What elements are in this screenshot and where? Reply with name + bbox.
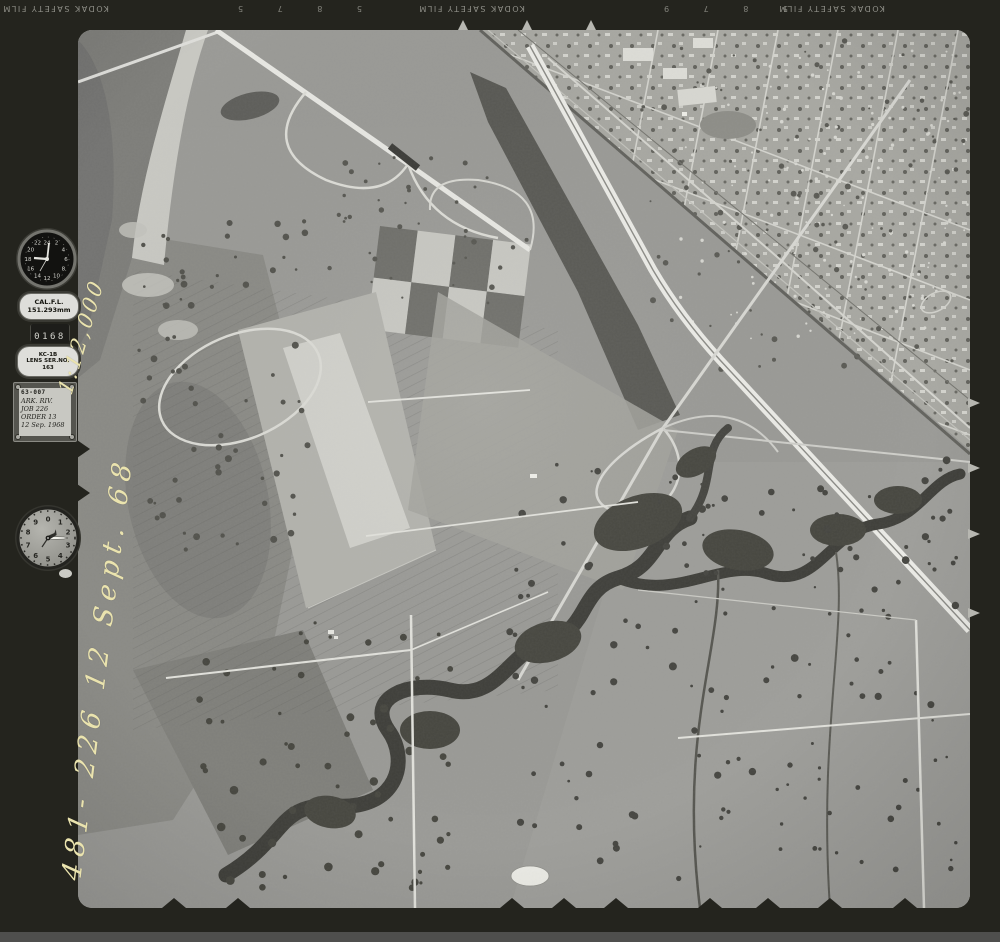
- svg-text:10: 10: [53, 273, 60, 279]
- svg-text:3: 3: [66, 542, 71, 550]
- calibrated-focal-length-label: CAL.F.L. 151.293mm: [19, 293, 79, 320]
- film-edge-text: KODAK SAFETY FILM: [2, 4, 109, 13]
- film-notch: [698, 898, 722, 908]
- film-notch: [968, 608, 980, 618]
- film-notch: [818, 898, 842, 908]
- film-notch: [756, 898, 780, 908]
- altimeter: 0 1 2 3 4 5 6 7 8 9: [12, 502, 84, 574]
- plate-date: 12 Sep. 1968: [21, 421, 69, 429]
- svg-text:14: 14: [34, 273, 41, 279]
- film-notch: [968, 529, 980, 539]
- svg-text:16: 16: [27, 267, 34, 273]
- plate-order: ORDER 13: [21, 413, 69, 421]
- film-notch: [552, 898, 576, 908]
- film-edge-text: KODAK SAFETY FILM: [778, 4, 885, 13]
- svg-text:7: 7: [26, 542, 31, 550]
- svg-text:20: 20: [27, 248, 34, 254]
- svg-text:4: 4: [58, 552, 63, 560]
- svg-text:12: 12: [44, 276, 51, 282]
- film-notch: [893, 898, 917, 908]
- svg-text:24: 24: [44, 241, 51, 247]
- svg-text:22: 22: [34, 241, 41, 247]
- film-notch: [586, 20, 596, 30]
- plate-job: JOB 226: [21, 405, 69, 413]
- aerial-photo: [78, 30, 970, 908]
- film-notch: [77, 440, 90, 458]
- svg-text:8: 8: [26, 529, 31, 537]
- svg-text:6: 6: [64, 257, 68, 263]
- film-notch: [968, 398, 980, 408]
- mission-clock: 24 2 4 6 8 10 12 14 16 18 20 22: [12, 224, 82, 294]
- film-edge-blemish: [59, 569, 72, 578]
- film-notch: [77, 484, 90, 502]
- film-notch: [162, 898, 186, 908]
- plate-area: ARK. RIV.: [21, 397, 69, 405]
- film-notch: [500, 898, 524, 908]
- svg-text:8: 8: [62, 267, 66, 273]
- scanner-background-strip: [0, 932, 1000, 942]
- aerial-photo-art: [78, 30, 970, 908]
- film-notch: [604, 898, 628, 908]
- svg-text:0: 0: [46, 516, 51, 524]
- svg-text:9: 9: [33, 519, 38, 527]
- svg-text:2: 2: [55, 241, 59, 247]
- film-edge-text: KODAK SAFETY FILM: [418, 4, 525, 13]
- svg-text:5: 5: [46, 556, 51, 564]
- film-edge-number: 5 8 7 5: [222, 4, 362, 13]
- frame-counter: 0168: [30, 324, 70, 342]
- svg-text:1: 1: [58, 519, 63, 527]
- svg-text:4: 4: [62, 248, 66, 254]
- film-edge-number: 5 8 7 9: [648, 4, 788, 13]
- svg-text:18: 18: [25, 257, 32, 263]
- svg-text:2: 2: [66, 529, 71, 537]
- film-notch: [522, 20, 532, 30]
- film-notch: [226, 898, 250, 908]
- film-notch: [968, 463, 980, 473]
- film-notch: [458, 20, 468, 30]
- svg-text:6: 6: [33, 552, 38, 560]
- film-frame: KODAK SAFETY FILM 5 8 7 5 KODAK SAFETY F…: [0, 0, 1000, 942]
